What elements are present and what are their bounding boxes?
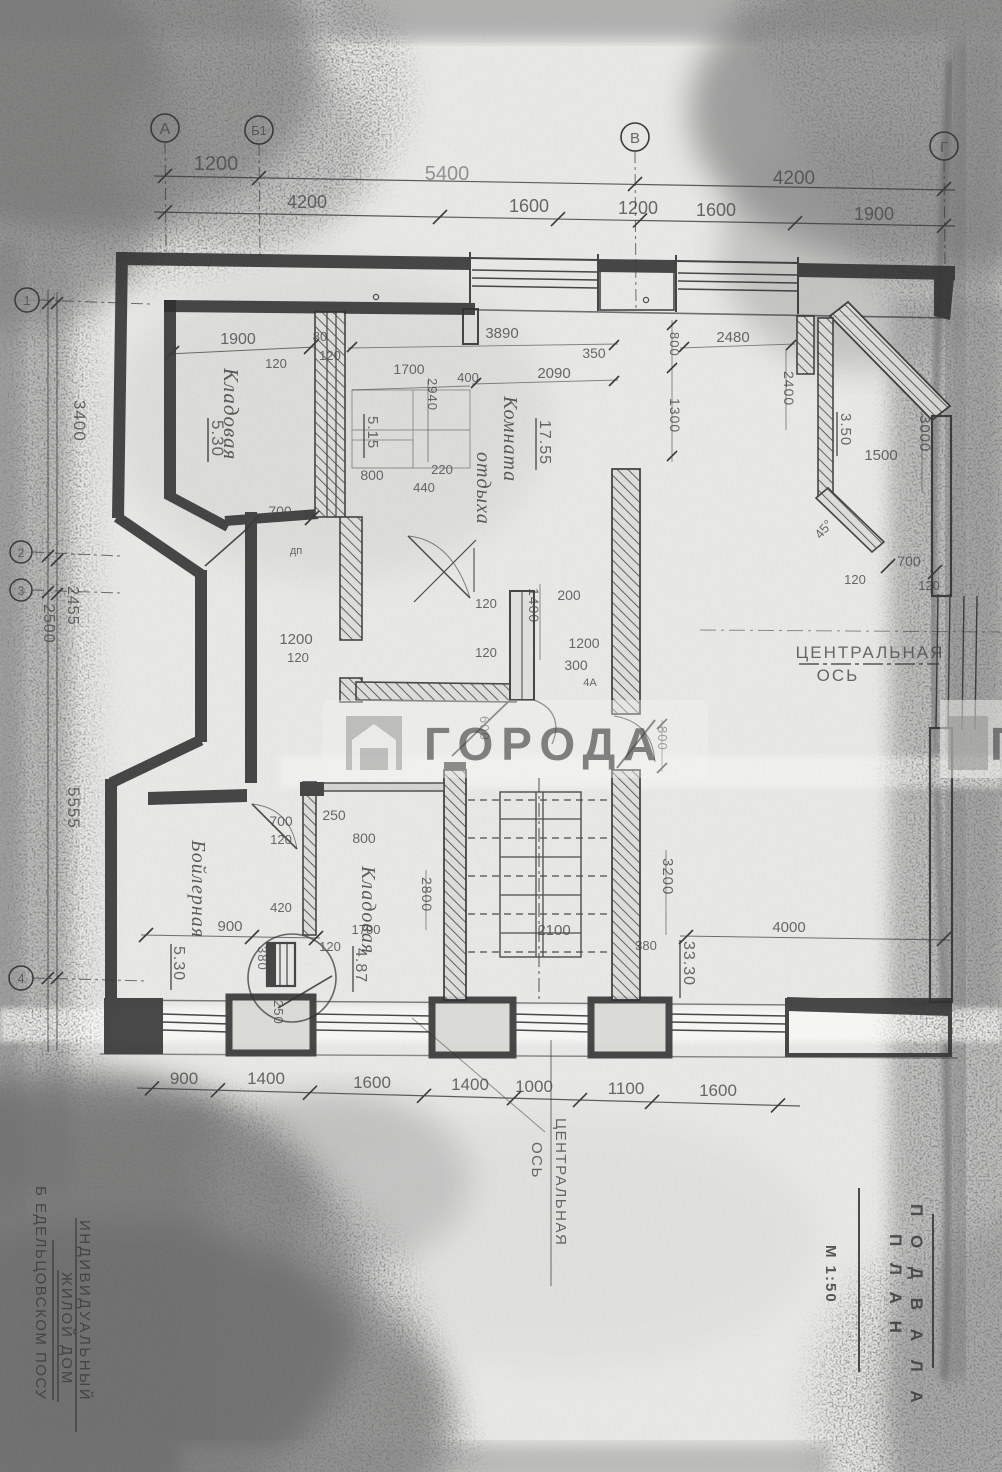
svg-text:1100: 1100	[608, 1079, 645, 1098]
svg-text:3000: 3000	[916, 415, 933, 452]
svg-text:ГОРОДА: ГОРОДА	[424, 718, 665, 770]
svg-text:1200: 1200	[618, 198, 658, 218]
svg-text:1900: 1900	[220, 331, 256, 348]
svg-text:2480: 2480	[716, 329, 749, 346]
svg-text:2: 2	[18, 546, 25, 560]
svg-text:1600: 1600	[509, 196, 549, 216]
svg-text:700: 700	[268, 503, 292, 519]
svg-text:380: 380	[255, 946, 270, 971]
svg-text:2940: 2940	[425, 378, 440, 411]
svg-text:Г: Г	[940, 139, 948, 156]
svg-text:4А: 4А	[583, 677, 597, 689]
svg-text:ЦЕНТРАЛЬНАЯ: ЦЕНТРАЛЬНАЯ	[552, 1118, 569, 1246]
svg-text:1200: 1200	[279, 631, 312, 648]
svg-text:ГО: ГО	[990, 718, 1002, 770]
svg-text:1200: 1200	[568, 635, 599, 651]
svg-text:ОСЬ: ОСЬ	[528, 1142, 545, 1179]
svg-text:1300: 1300	[667, 398, 683, 433]
svg-text:1000: 1000	[515, 1077, 553, 1096]
svg-text:17.55: 17.55	[536, 420, 553, 465]
svg-text:1600: 1600	[696, 200, 736, 220]
svg-text:1400: 1400	[247, 1069, 285, 1088]
svg-text:350: 350	[582, 345, 606, 361]
svg-text:900: 900	[170, 1069, 198, 1088]
svg-text:420: 420	[270, 900, 292, 915]
svg-text:5555: 5555	[64, 787, 83, 829]
svg-text:4000: 4000	[772, 919, 805, 936]
svg-text:2500: 2500	[40, 604, 57, 644]
svg-text:120: 120	[287, 650, 309, 665]
svg-text:дп: дп	[290, 545, 302, 557]
svg-text:П Л А Н: П Л А Н	[886, 1234, 905, 1339]
svg-text:120: 120	[844, 572, 866, 587]
svg-text:250: 250	[271, 1000, 286, 1025]
svg-text:120: 120	[265, 356, 287, 371]
svg-text:80: 80	[313, 329, 327, 344]
svg-text:120: 120	[475, 596, 497, 611]
svg-text:1600: 1600	[699, 1081, 737, 1100]
svg-text:300: 300	[564, 657, 588, 673]
svg-text:Комната: Комната	[499, 395, 521, 482]
svg-text:2400: 2400	[781, 371, 797, 406]
svg-text:Бойлерная: Бойлерная	[187, 839, 209, 938]
svg-text:800: 800	[360, 467, 384, 483]
svg-text:5.30: 5.30	[170, 946, 187, 981]
svg-text:200: 200	[557, 587, 581, 603]
svg-text:120: 120	[270, 832, 292, 847]
svg-text:ОСЬ: ОСЬ	[817, 666, 860, 685]
svg-text:120: 120	[319, 348, 341, 363]
svg-text:1900: 1900	[854, 204, 894, 224]
svg-text:3.50: 3.50	[837, 413, 854, 446]
svg-text:4200: 4200	[773, 168, 815, 189]
svg-text:ЦЕНТРАЛЬНАЯ: ЦЕНТРАЛЬНАЯ	[796, 643, 945, 662]
svg-text:5400: 5400	[425, 163, 470, 185]
svg-text:отдыха: отдыха	[472, 452, 494, 525]
svg-text:ИНДИВИДУАЛЬНЫЙ: ИНДИВИДУАЛЬНЫЙ	[76, 1220, 94, 1402]
svg-text:700: 700	[897, 553, 921, 569]
svg-text:3200: 3200	[659, 858, 676, 895]
svg-text:440: 440	[413, 480, 435, 495]
svg-text:Б1: Б1	[251, 123, 267, 138]
svg-text:5.30: 5.30	[208, 420, 227, 457]
svg-text:3890: 3890	[485, 325, 518, 342]
svg-text:1: 1	[23, 293, 30, 308]
svg-text:220: 220	[431, 462, 453, 477]
svg-text:Б ЕДЕЛЬЦОВСКОМ ПОСУ: Б ЕДЕЛЬЦОВСКОМ ПОСУ	[32, 1186, 49, 1400]
svg-text:В: В	[630, 130, 640, 147]
svg-text:1500: 1500	[864, 447, 897, 464]
svg-text:П О Д В А Л А: П О Д В А Л А	[907, 1204, 926, 1410]
svg-text:33.30: 33.30	[680, 941, 697, 986]
svg-text:700: 700	[269, 813, 293, 829]
svg-text:2090: 2090	[537, 365, 570, 382]
svg-text:4: 4	[17, 971, 24, 986]
svg-text:3400: 3400	[70, 400, 89, 442]
svg-text:М 1:50: М 1:50	[822, 1245, 839, 1304]
svg-text:120: 120	[319, 939, 341, 954]
svg-text:5.15: 5.15	[364, 416, 381, 449]
svg-text:4200: 4200	[287, 192, 327, 212]
svg-text:ЖИЛОЙ ДОМ: ЖИЛОЙ ДОМ	[58, 1272, 76, 1385]
svg-text:800: 800	[352, 830, 376, 846]
svg-text:120: 120	[475, 645, 497, 660]
svg-text:900: 900	[217, 918, 242, 935]
svg-text:380: 380	[635, 938, 657, 953]
svg-text:1600: 1600	[353, 1073, 391, 1092]
svg-text:2100: 2100	[537, 922, 570, 939]
svg-text:120: 120	[918, 578, 940, 593]
svg-text:1700: 1700	[393, 361, 424, 377]
svg-text:3: 3	[18, 584, 25, 598]
svg-text:1400: 1400	[451, 1075, 489, 1094]
svg-text:800: 800	[667, 332, 682, 357]
svg-text:А: А	[160, 121, 171, 138]
svg-text:Кладовая: Кладовая	[357, 865, 379, 954]
svg-text:2800: 2800	[419, 877, 435, 912]
svg-text:1200: 1200	[194, 153, 239, 175]
svg-text:250: 250	[322, 807, 346, 823]
